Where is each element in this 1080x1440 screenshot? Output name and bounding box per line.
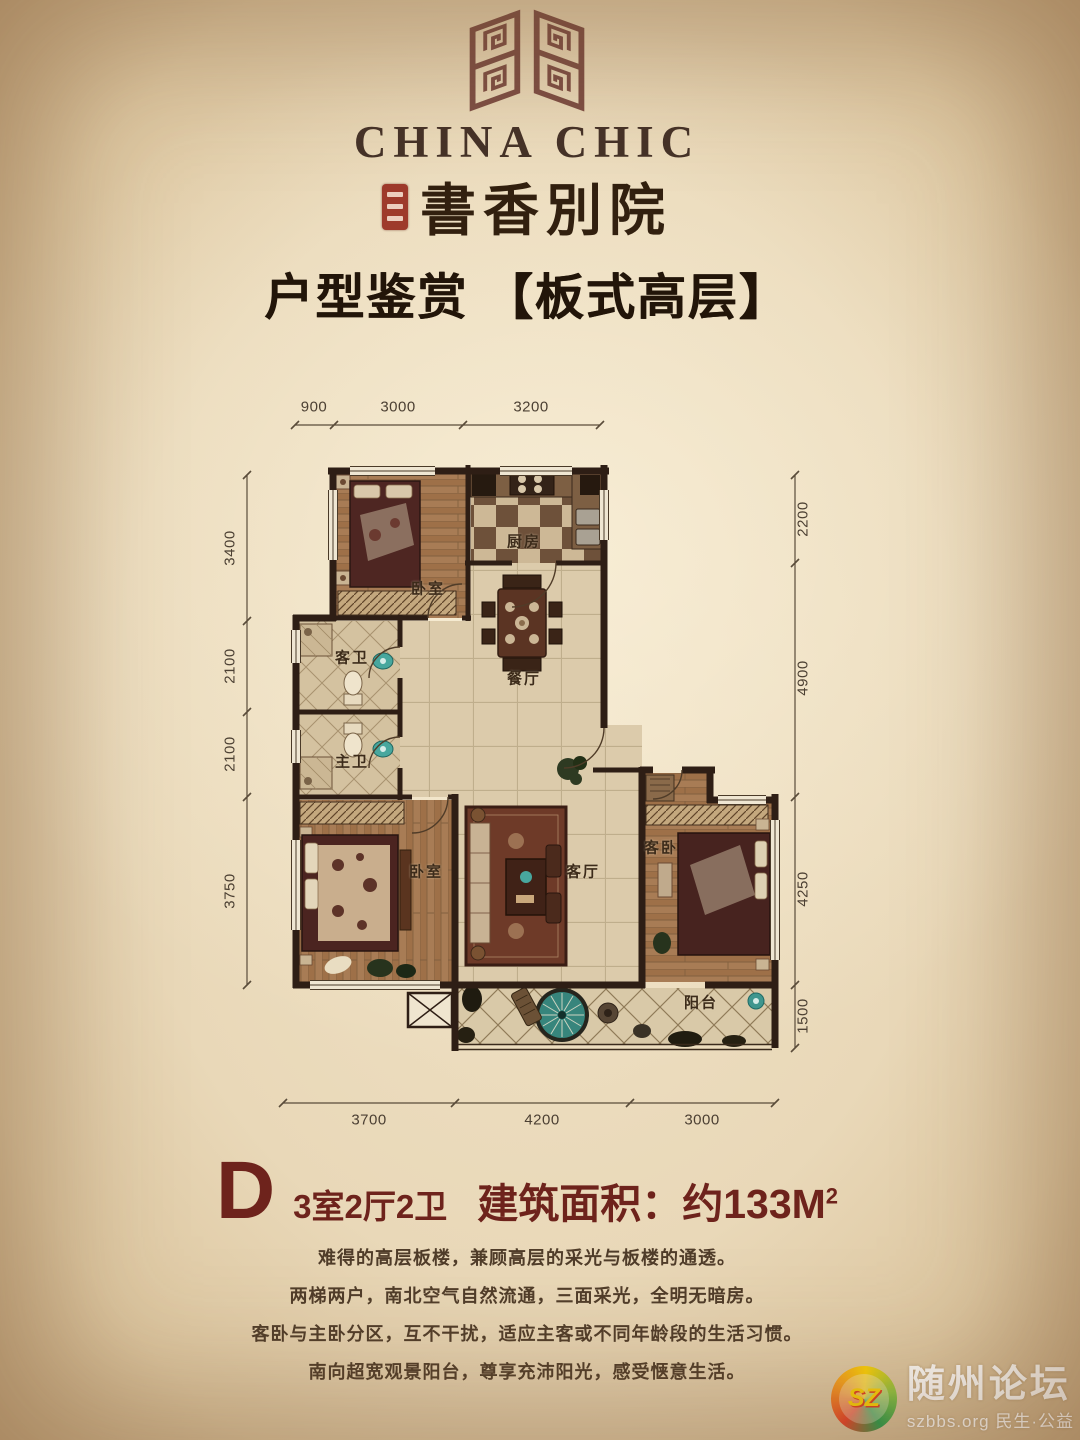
room-label-bedroom-top: 卧室 bbox=[411, 578, 445, 599]
poster-page: CHINA CHIC 書香別院 户型鉴赏 【板式高层】 bbox=[0, 0, 1080, 1440]
brand-name-row: 書香別院 bbox=[382, 166, 672, 247]
brand-logo-icon bbox=[459, 6, 595, 112]
dim-left-3: 2100 bbox=[222, 736, 239, 771]
dim-right-1: 2200 bbox=[795, 501, 812, 536]
dim-top-2: 3000 bbox=[380, 399, 415, 416]
room-label-guest-bedroom: 客卧 bbox=[644, 837, 678, 858]
room-label-balcony: 阳台 bbox=[684, 992, 718, 1013]
dim-right-4: 1500 bbox=[795, 998, 812, 1033]
floor-plan-drawing bbox=[210, 395, 830, 1135]
dim-bottom-1: 3700 bbox=[351, 1112, 386, 1129]
dim-left-2: 2100 bbox=[222, 648, 239, 683]
dim-right-3: 4250 bbox=[795, 871, 812, 906]
dim-left-4: 3750 bbox=[222, 873, 239, 908]
unit-type-letter: D bbox=[216, 1150, 275, 1232]
room-label-master-bedroom: 卧室 bbox=[409, 861, 443, 882]
watermark-site-name: 随州论坛 bbox=[907, 1365, 1074, 1407]
description-line: 两梯两户，南北空气自然流通，三面采光，全明无暗房。 bbox=[77, 1282, 977, 1308]
unit-area: 建筑面积：约133M2 bbox=[477, 1170, 838, 1230]
watermark-site-tagline: szbbs.org 民生·公益 bbox=[907, 1407, 1074, 1432]
dim-top-1: 900 bbox=[301, 399, 328, 416]
page-title: 户型鉴赏 【板式高层】 bbox=[264, 258, 790, 329]
dim-bottom-2: 4200 bbox=[524, 1112, 559, 1129]
room-label-dining: 餐厅 bbox=[507, 668, 541, 689]
dim-top-3: 3200 bbox=[513, 399, 548, 416]
watermark-logo-icon: SZ bbox=[831, 1366, 897, 1432]
unit-area-superscript: 2 bbox=[826, 1183, 838, 1208]
description-line: 难得的高层板楼，兼顾高层的采光与板楼的通透。 bbox=[77, 1244, 977, 1270]
room-label-master-bath: 主卫 bbox=[335, 751, 369, 772]
unit-info-row: D 3室2厅2卫 建筑面积：约133M2 bbox=[216, 1150, 838, 1232]
brand-name-en: CHINA CHIC bbox=[354, 116, 700, 168]
dim-bottom-3: 3000 bbox=[684, 1112, 719, 1129]
watermark: SZ 随州论坛 szbbs.org 民生·公益 bbox=[831, 1365, 1074, 1432]
description-line: 客卧与主卧分区，互不干扰，适应主客或不同年龄段的生活习惯。 bbox=[77, 1320, 977, 1346]
unit-layout: 3室2厅2卫 bbox=[293, 1180, 447, 1228]
unit-area-text: 建筑面积：约133M bbox=[477, 1181, 826, 1227]
seal-stamp-icon bbox=[382, 184, 408, 230]
dim-right-2: 4900 bbox=[795, 660, 812, 695]
brand-name-cn: 書香別院 bbox=[420, 166, 672, 247]
watermark-initials: SZ bbox=[848, 1384, 880, 1413]
dim-left-1: 3400 bbox=[222, 530, 239, 565]
room-label-guest-bath: 客卫 bbox=[335, 647, 369, 668]
room-label-living: 客厅 bbox=[566, 861, 600, 882]
room-label-kitchen: 厨房 bbox=[507, 531, 541, 552]
